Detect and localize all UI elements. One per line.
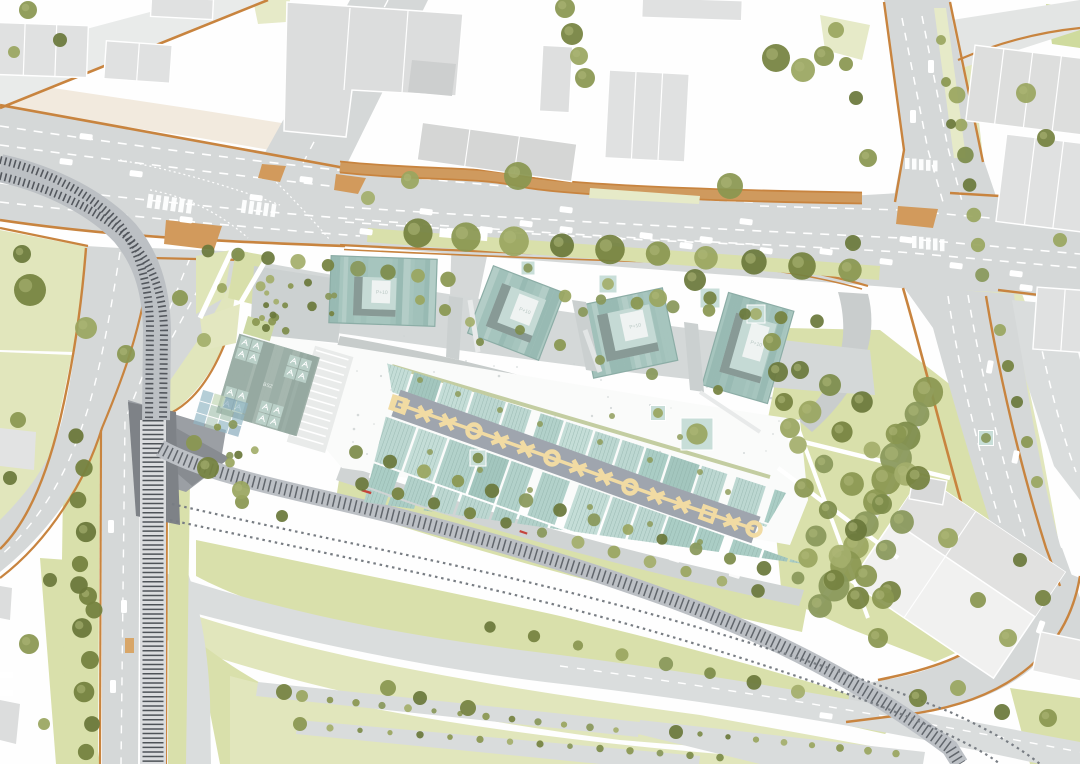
svg-text:P+10: P+10: [376, 290, 388, 296]
